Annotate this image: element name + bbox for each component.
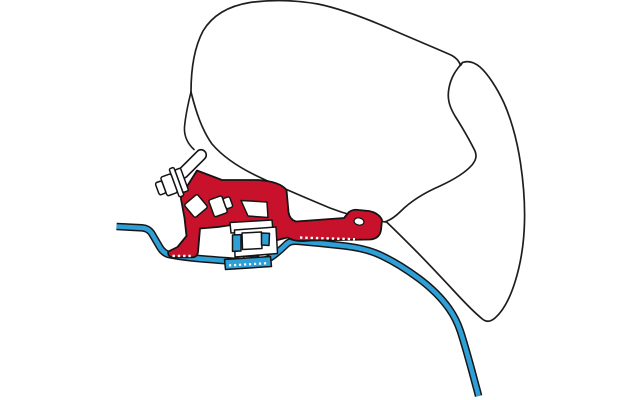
- clamp-pad-right: [262, 233, 270, 246]
- clamp-pad-left: [233, 235, 242, 252]
- diagram-canvas: [0, 0, 640, 400]
- awning-case-front-flap: [386, 62, 525, 322]
- roof-rail-clamp: [225, 220, 278, 270]
- awning-adapter-diagram: [0, 0, 640, 400]
- clamp-window: [242, 232, 262, 250]
- awning-case-profile: [184, 1, 524, 322]
